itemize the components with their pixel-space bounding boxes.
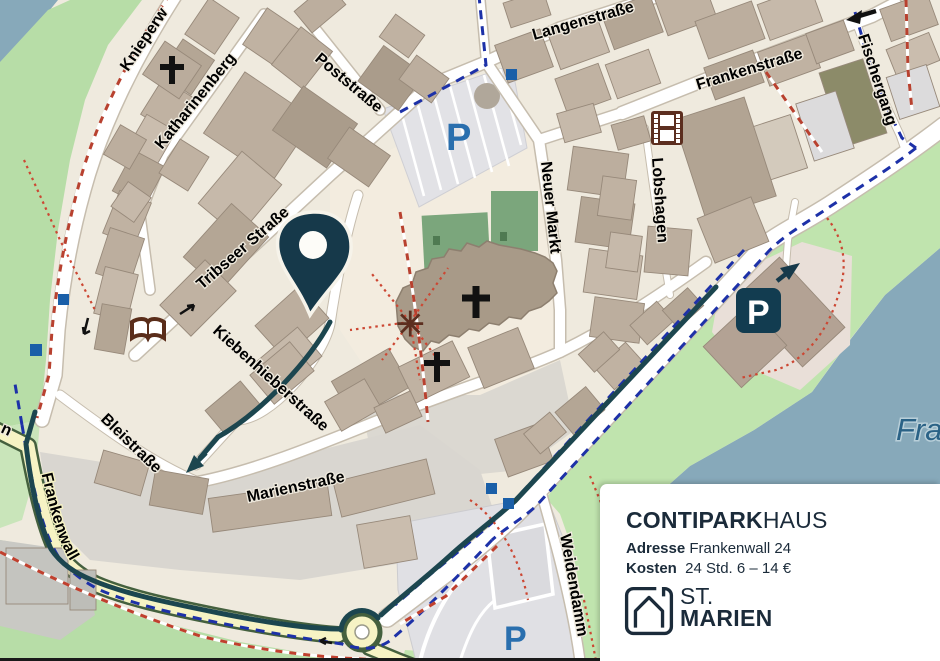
- svg-text:P: P: [446, 117, 471, 159]
- svg-text:P: P: [747, 294, 770, 332]
- svg-text:Fra: Fra: [896, 412, 940, 447]
- svg-text:✳: ✳: [396, 306, 425, 344]
- svg-text:P: P: [504, 620, 527, 658]
